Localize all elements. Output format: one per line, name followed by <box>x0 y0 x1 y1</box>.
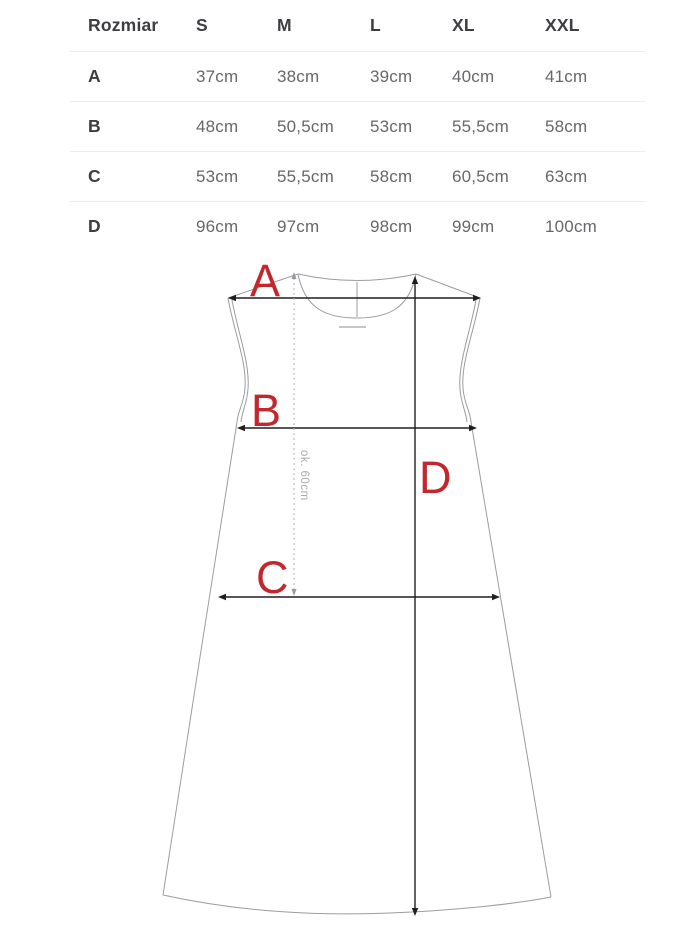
right-side-seam <box>471 422 551 897</box>
row-label: C <box>88 166 196 187</box>
hem-curve <box>163 895 551 914</box>
col-header-s: S <box>196 15 277 36</box>
cell-value: 98cm <box>370 217 452 237</box>
dress-measurement-diagram: ok. 60cm A B C D <box>0 250 700 933</box>
cell-value: 37cm <box>196 67 277 87</box>
dimension-d <box>412 276 418 916</box>
cell-value: 55,5cm <box>277 167 370 187</box>
row-label: D <box>88 216 196 237</box>
right-armhole-inner <box>460 300 476 422</box>
col-header-xxl: XXL <box>545 15 645 36</box>
cell-value: 96cm <box>196 217 277 237</box>
size-table-header-row: Rozmiar S M L XL XXL <box>70 0 645 51</box>
measure-label-a: A <box>250 255 280 306</box>
measure-label-d: D <box>419 452 452 503</box>
col-header-rozmiar: Rozmiar <box>88 15 196 36</box>
size-chart-page: Rozmiar S M L XL XXL A 37cm 38cm 39cm 40… <box>0 0 700 933</box>
cell-value: 40cm <box>452 67 545 87</box>
measure-label-b: B <box>251 385 281 436</box>
cell-value: 38cm <box>277 67 370 87</box>
left-side-seam <box>163 422 237 895</box>
approx-length-line: ok. 60cm <box>292 272 311 596</box>
cell-value: 58cm <box>370 167 452 187</box>
right-armhole-outer <box>463 298 480 422</box>
row-label: A <box>88 66 196 87</box>
cell-value: 48cm <box>196 117 277 137</box>
cell-value: 97cm <box>277 217 370 237</box>
right-shoulder-seam <box>416 274 480 298</box>
cell-value: 53cm <box>370 117 452 137</box>
approx-length-note: ok. 60cm <box>298 450 310 501</box>
measure-label-c: C <box>256 552 289 603</box>
col-header-m: M <box>277 15 370 36</box>
table-row-d: D 96cm 97cm 98cm 99cm 100cm <box>70 201 645 251</box>
back-neckline <box>298 274 416 281</box>
dress-outline <box>163 274 551 914</box>
cell-value: 39cm <box>370 67 452 87</box>
cell-value: 41cm <box>545 67 645 87</box>
col-header-xl: XL <box>452 15 545 36</box>
cell-value: 100cm <box>545 217 645 237</box>
left-armhole-outer <box>228 298 245 422</box>
row-label: B <box>88 116 196 137</box>
left-armhole-inner <box>232 300 248 422</box>
col-header-l: L <box>370 15 452 36</box>
cell-value: 63cm <box>545 167 645 187</box>
cell-value: 60,5cm <box>452 167 545 187</box>
cell-value: 50,5cm <box>277 117 370 137</box>
table-row-a: A 37cm 38cm 39cm 40cm 41cm <box>70 51 645 101</box>
table-row-c: C 53cm 55,5cm 58cm 60,5cm 63cm <box>70 151 645 201</box>
cell-value: 99cm <box>452 217 545 237</box>
cell-value: 55,5cm <box>452 117 545 137</box>
table-row-b: B 48cm 50,5cm 53cm 55,5cm 58cm <box>70 101 645 151</box>
cell-value: 53cm <box>196 167 277 187</box>
cell-value: 58cm <box>545 117 645 137</box>
size-table: Rozmiar S M L XL XXL A 37cm 38cm 39cm 40… <box>70 0 645 251</box>
